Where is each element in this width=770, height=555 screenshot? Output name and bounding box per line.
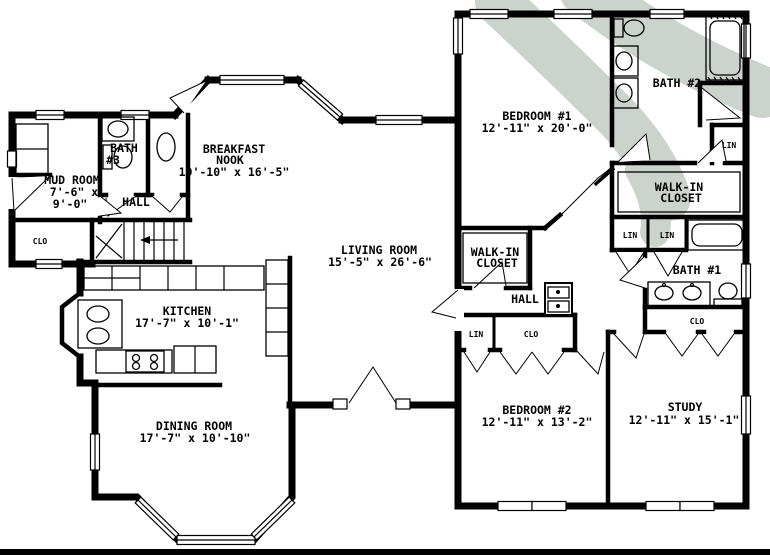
window [742,24,751,58]
window [8,151,17,167]
mud-room-dims-2: 9'-0" [53,197,88,211]
shower3-stall [157,133,175,161]
door-bed2-clo-a [500,352,532,374]
window [498,502,566,511]
floor-plan: MUD ROOM 7'-6" x 9'-0" BATH #3 HALL BREA… [0,0,770,555]
kitchen-sink [78,300,122,348]
bedroom1-dims: 12'-11" x 20'-0" [482,121,593,135]
door-living-rear [349,367,396,403]
living-dims: 15'-5" x 26'-6" [328,255,432,269]
window-diagonal [251,497,295,540]
bottom-border [0,549,770,555]
door-bed2-clo-b [532,352,564,374]
kitchen-counter-top [84,266,264,290]
lin-bath2-label: LIN [722,141,737,150]
window [454,18,463,54]
lin-bedroom2-label: LIN [469,330,484,339]
bath1-toilet [714,283,742,307]
nook-dims: 10'-10" x 16'-5" [179,165,290,179]
window [742,396,751,434]
washer-dryer-stack [545,283,572,315]
clo-mudroom-label: CLO [33,237,48,246]
bath1-tub [688,220,746,250]
mudroom-lockers [16,124,48,174]
door-clo-bath1-b [702,334,734,356]
kitchen-range [96,350,172,373]
walkin-right-label-2: CLOSET [660,191,702,205]
bath2-label: BATH #2 [653,76,701,90]
study-dims: 12'-11" x 15'-1" [629,413,740,427]
window [91,434,100,470]
window [554,10,592,19]
door-clo-bath1-a [666,334,698,356]
bath3-label-2: #3 [106,153,120,167]
window [177,536,255,545]
window-diagonal [298,80,342,120]
lin-hall-a-label: LIN [623,231,638,240]
window [742,264,751,298]
lin-hall-b-label: LIN [660,231,675,240]
door-bed2-lin [464,352,490,372]
hall-right-label: HALL [511,292,539,306]
hall-left-label: HALL [122,195,150,209]
dining-dims: 17'-7" x 10'-10" [140,431,251,445]
study-label: STUDY [668,400,703,414]
door-study [614,334,644,358]
window [220,76,284,85]
stairs [96,221,184,260]
door-bedroom2 [576,350,604,374]
window [646,502,714,511]
clo-bedroom2-label: CLO [524,330,539,339]
window [36,111,64,120]
bedroom2-dims: 12'-11" x 13'-2" [482,415,593,429]
bath1-label: BATH #1 [673,263,722,277]
floor-plan-canvas: MUD ROOM 7'-6" x 9'-0" BATH #3 HALL BREA… [0,0,770,555]
door-nook [170,81,206,113]
kitchen-hutch [266,260,288,356]
window [470,10,508,19]
door-hall-living [432,290,458,318]
window [376,116,422,125]
bath3-sink [102,117,134,141]
kitchen-fridge [174,346,216,373]
door-bedroom1 [558,172,606,218]
window [36,260,62,269]
door-shower3 [152,196,182,212]
window [121,111,149,120]
walkin-left-label-2: CLOSET [476,256,518,270]
clo-bath1-label: CLO [690,317,705,326]
bath1-sinks [648,282,710,306]
wall-openings [6,177,464,411]
window [650,10,684,19]
kitchen-dims: 17'-7" x 10'-1" [135,316,239,330]
window-diagonal [135,497,179,540]
